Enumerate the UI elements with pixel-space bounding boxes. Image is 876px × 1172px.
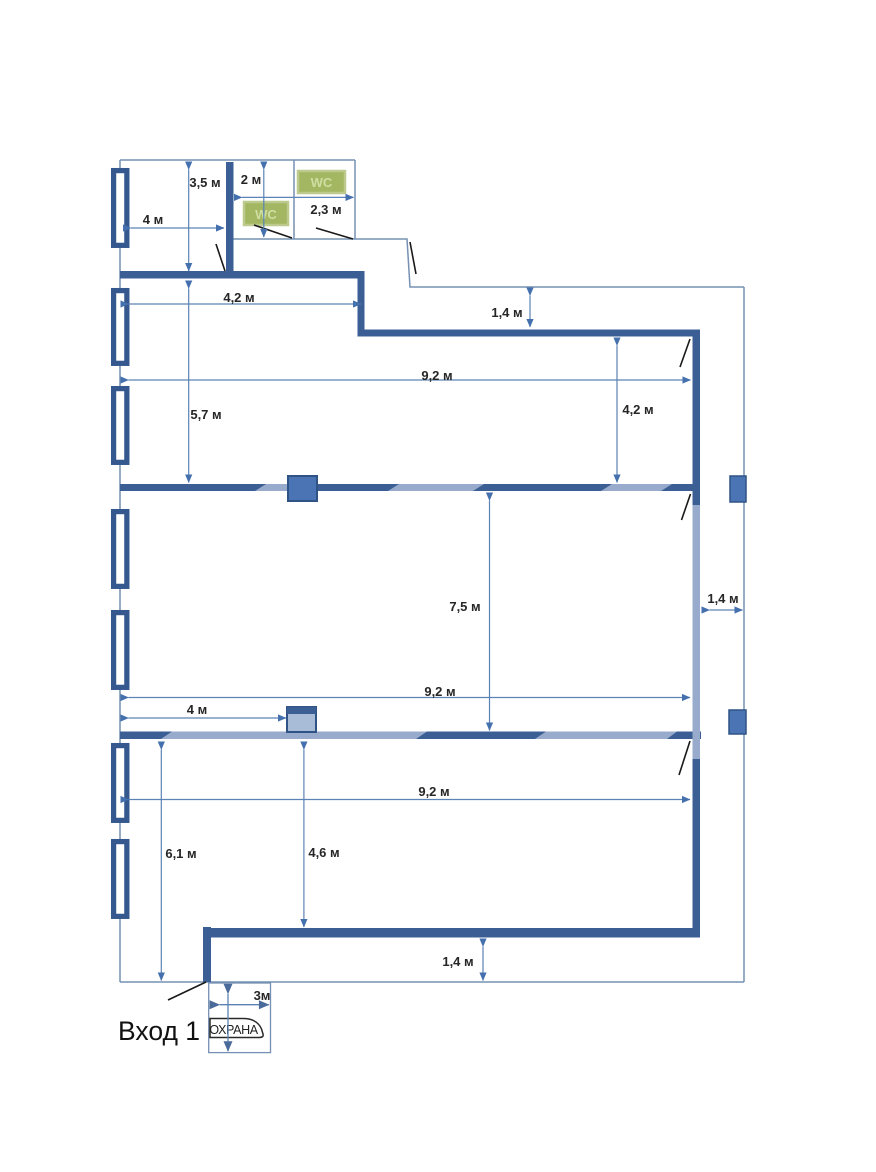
svg-text:3,5 м: 3,5 м [189,175,220,190]
svg-text:Вход 1: Вход 1 [118,1016,200,1046]
svg-text:4 м: 4 м [187,702,207,717]
svg-text:1,4 м: 1,4 м [707,591,738,606]
svg-text:1,4 м: 1,4 м [491,305,522,320]
svg-text:4,2 м: 4,2 м [622,402,653,417]
svg-text:4 м: 4 м [143,212,163,227]
svg-text:WC: WC [255,207,277,222]
svg-text:4,6 м: 4,6 м [308,845,339,860]
svg-text:4,2 м: 4,2 м [223,290,254,305]
svg-text:6,1 м: 6,1 м [165,846,196,861]
svg-text:1,4 м: 1,4 м [442,954,473,969]
svg-text:9,2 м: 9,2 м [424,684,455,699]
svg-text:WC: WC [311,175,333,190]
svg-text:2 м: 2 м [241,172,261,187]
svg-text:9,2 м: 9,2 м [421,368,452,383]
svg-text:3м: 3м [254,988,271,1003]
svg-text:5,7 м: 5,7 м [190,407,221,422]
svg-text:7,5 м: 7,5 м [449,599,480,614]
svg-text:2,3 м: 2,3 м [310,202,341,217]
svg-text:ОХРАНА: ОХРАНА [209,1023,258,1037]
svg-text:9,2 м: 9,2 м [418,784,449,799]
